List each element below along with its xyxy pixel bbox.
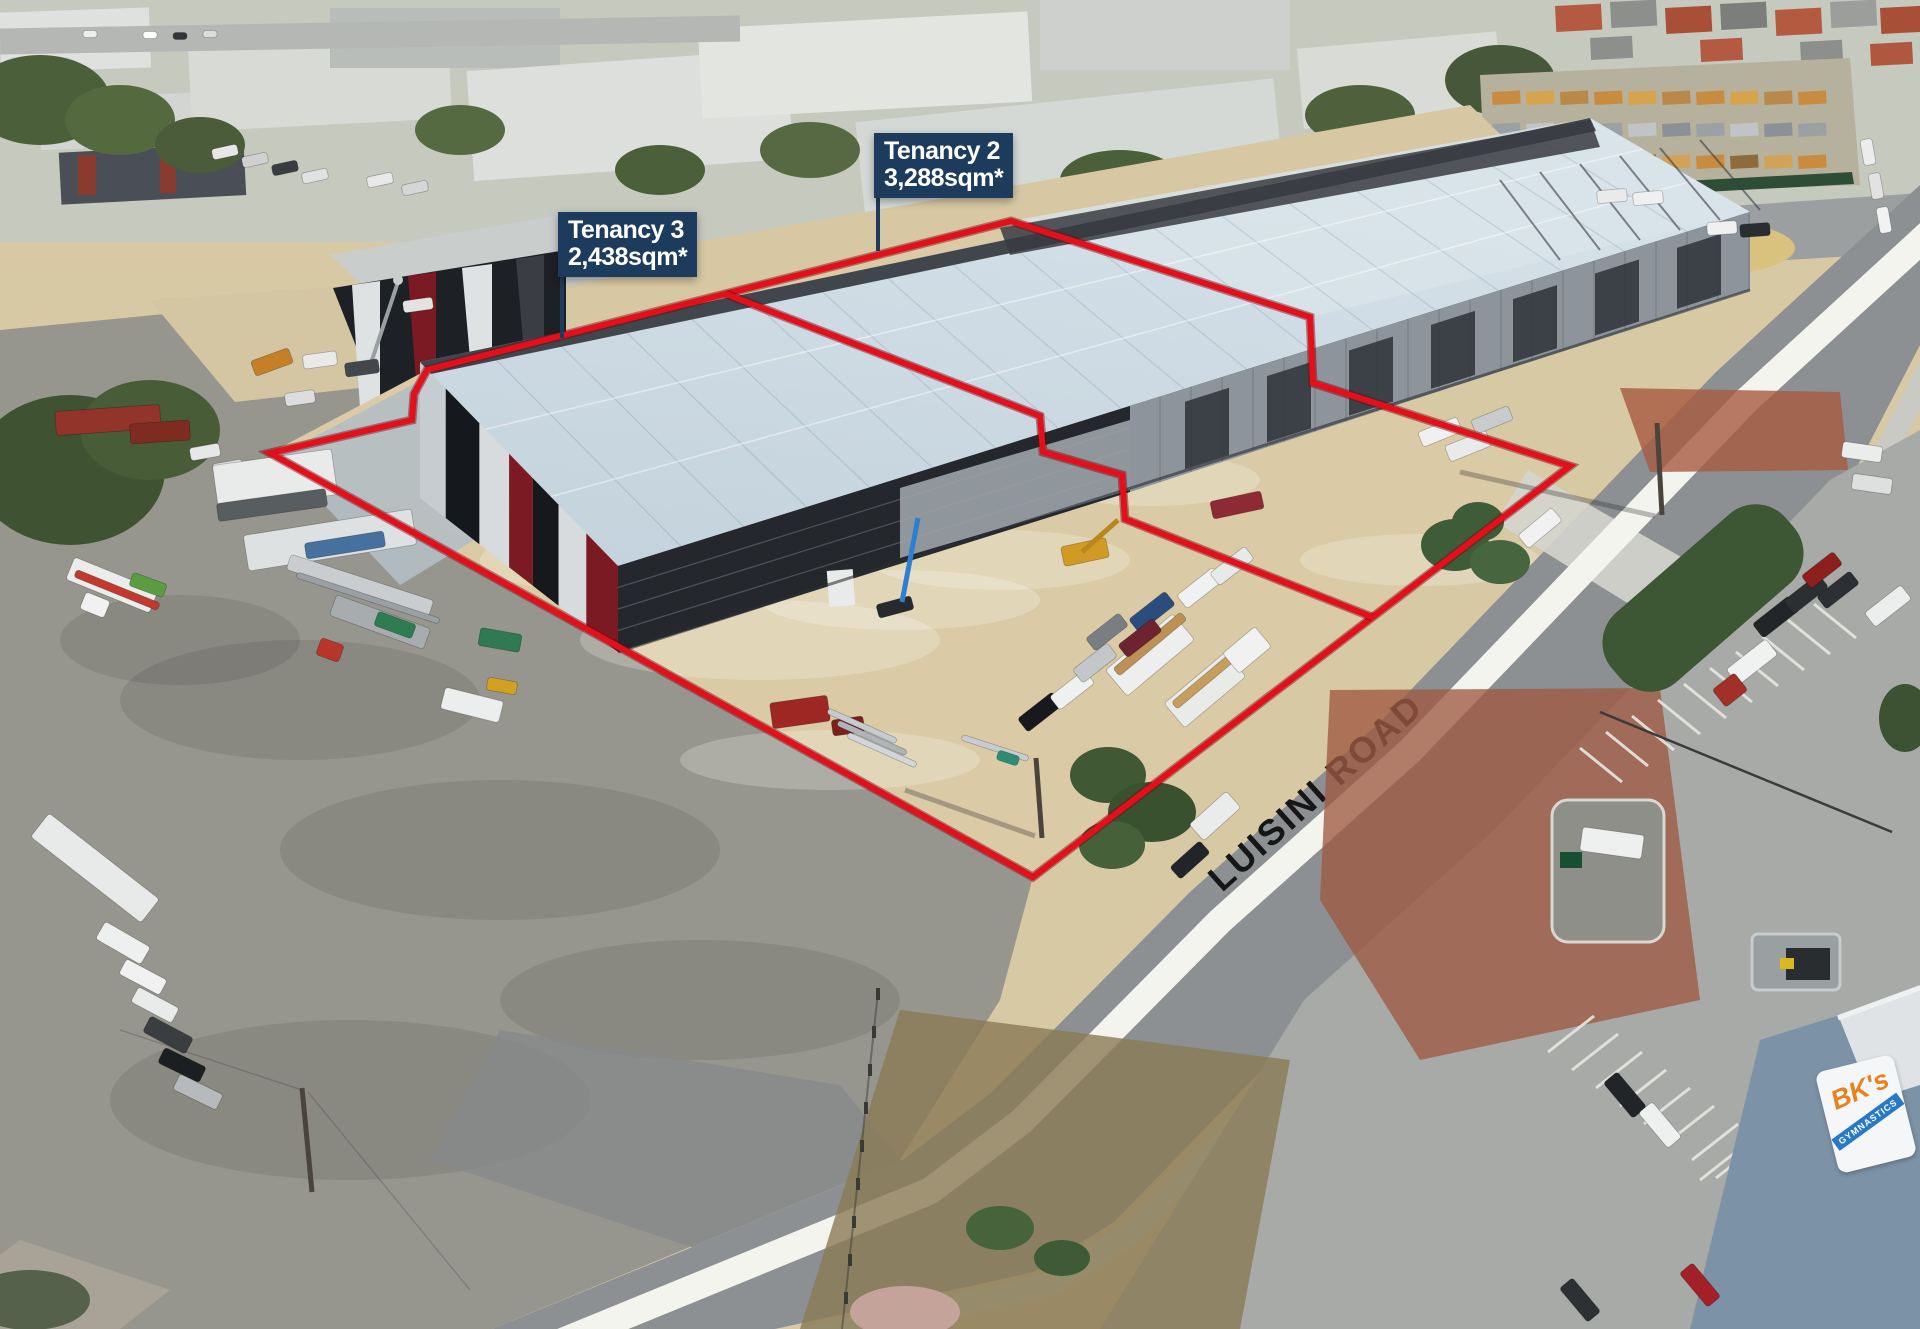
tree [415, 105, 505, 155]
roof [698, 11, 1032, 118]
house-roof [1610, 0, 1657, 28]
vehicle [203, 31, 217, 38]
vehicle [83, 31, 97, 38]
utility-box [1560, 852, 1582, 868]
tenancy2-leader-line [876, 195, 880, 251]
house-roof [1590, 36, 1633, 60]
vehicle [129, 420, 190, 444]
timber-stack [1798, 91, 1827, 105]
vehicle [1632, 190, 1663, 206]
timber-stack [1696, 123, 1725, 137]
bush [966, 1206, 1034, 1250]
roller-door [1267, 362, 1311, 442]
timber-stack [1730, 155, 1759, 169]
vehicle [1596, 188, 1627, 204]
timber-stack [1526, 91, 1555, 105]
landscape-island [1552, 800, 1664, 942]
timber-stack [1696, 155, 1725, 169]
tenancy2-label: Tenancy 2 3,288sqm* [874, 133, 1013, 198]
vehicle [1471, 406, 1514, 435]
timber-stack [1492, 91, 1521, 105]
vehicle [1189, 791, 1241, 841]
house-roof [1555, 4, 1602, 32]
office-accent [78, 155, 96, 195]
house-roof [1870, 42, 1913, 66]
house-roof [1880, 6, 1920, 34]
timber-stack [1764, 91, 1793, 105]
house-roof [1700, 38, 1743, 62]
house-roof [1720, 2, 1767, 30]
house-roof [1830, 0, 1877, 28]
wall-door [827, 569, 855, 607]
timber-stack [1628, 123, 1657, 137]
timber-stack [1798, 155, 1827, 169]
timber-stack [1628, 91, 1657, 105]
roller-door [1185, 388, 1229, 469]
vehicle [143, 32, 157, 39]
timber-stack [1560, 91, 1589, 105]
roof [1040, 0, 1290, 70]
tree [760, 122, 860, 178]
tenancy3-area: 2,438sqm* [568, 244, 687, 271]
timber-stack [1662, 123, 1691, 137]
tenancy2-title: Tenancy 2 [884, 137, 1000, 165]
aerial-scene: LUISINI ROAD [0, 0, 1920, 1329]
timber-stack [1696, 91, 1725, 105]
tenancy3-title: Tenancy 3 [568, 216, 684, 244]
house-roof [1775, 8, 1822, 36]
tenancy3-leader-line [560, 274, 564, 338]
timber-stack [1798, 123, 1827, 137]
bush [1470, 540, 1530, 584]
vehicle [1740, 222, 1771, 237]
red-dirt-top [1620, 388, 1848, 472]
tenancy2-area: 3,288sqm* [884, 165, 1003, 192]
vehicle [1707, 220, 1738, 235]
timber-stack [1730, 91, 1759, 105]
timber-stack [1764, 123, 1793, 137]
bush [1079, 821, 1145, 869]
vehicle [173, 33, 187, 40]
timber-stack [1764, 155, 1793, 169]
gable-stripe [420, 362, 446, 518]
aerial-site-photo: LUISINI ROAD Tenancy 2 [0, 0, 1920, 1329]
house-roof [1665, 6, 1712, 34]
timber-stack [1594, 91, 1623, 105]
tenancy3-label: Tenancy 3 2,438sqm* [558, 212, 697, 277]
tree [615, 145, 705, 195]
timber-stack [1730, 123, 1759, 137]
bush [1034, 1240, 1090, 1276]
stain [280, 780, 720, 920]
timber-stack [1662, 91, 1691, 105]
